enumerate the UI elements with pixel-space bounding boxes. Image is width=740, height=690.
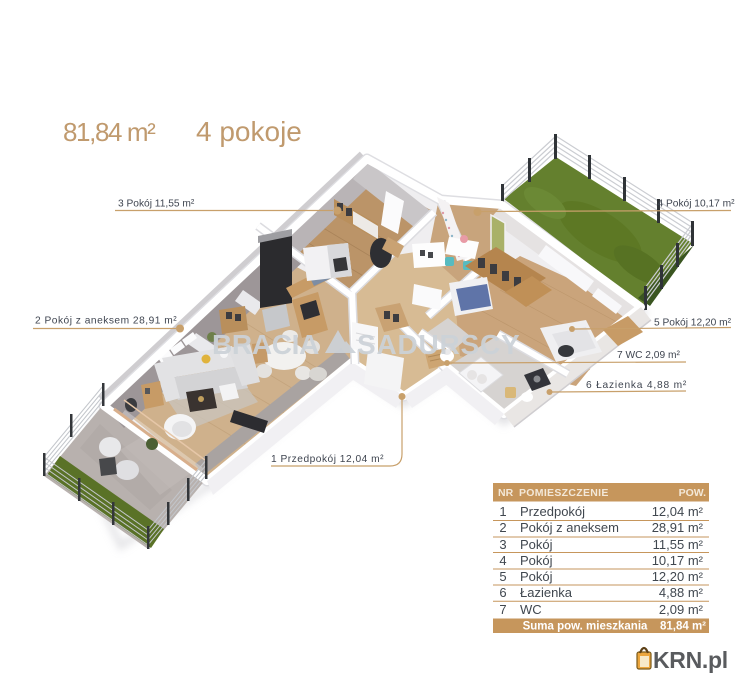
- svg-text:5 Pokój 12,20 m²: 5 Pokój 12,20 m²: [654, 318, 732, 329]
- svg-text:1: 1: [499, 504, 506, 519]
- svg-text:11,55 m²: 11,55 m²: [653, 537, 704, 552]
- svg-text:10,17 m²: 10,17 m²: [652, 553, 704, 568]
- svg-text:BRACIA: BRACIA: [212, 329, 319, 360]
- svg-text:NR: NR: [498, 487, 514, 499]
- svg-text:WC: WC: [520, 602, 542, 617]
- svg-text:7 WC 2,09 m²: 7 WC 2,09 m²: [617, 350, 680, 361]
- svg-text:28,91 m²: 28,91 m²: [652, 520, 704, 535]
- svg-text:Przedpokój: Przedpokój: [520, 504, 585, 519]
- svg-text:4,88 m²: 4,88 m²: [659, 585, 704, 600]
- svg-text:Pokój z aneksem: Pokój z aneksem: [520, 520, 619, 535]
- svg-text:2: 2: [499, 520, 506, 535]
- svg-text:81,84 m²: 81,84 m²: [660, 621, 706, 633]
- svg-text:Suma pow. mieszkania: Suma pow. mieszkania: [523, 621, 648, 633]
- svg-text:6 Łazienka 4,88 m²: 6 Łazienka 4,88 m²: [586, 380, 687, 391]
- svg-text:2,09 m²: 2,09 m²: [659, 602, 704, 617]
- svg-text:Pokój: Pokój: [520, 569, 553, 584]
- svg-text:Pokój: Pokój: [520, 537, 553, 552]
- svg-text:12,20 m²: 12,20 m²: [652, 569, 704, 584]
- svg-text:SADURSCY: SADURSCY: [357, 329, 521, 360]
- svg-text:12,04 m²: 12,04 m²: [652, 504, 704, 519]
- svg-text:POW.: POW.: [679, 487, 707, 499]
- svg-text:Pokój: Pokój: [520, 553, 553, 568]
- svg-text:5: 5: [499, 569, 506, 584]
- svg-text:1 Przedpokój 12,04 m²: 1 Przedpokój 12,04 m²: [271, 454, 384, 465]
- svg-text:7: 7: [499, 602, 506, 617]
- svg-text:3: 3: [499, 537, 506, 552]
- svg-text:81,84 m²: 81,84 m²: [63, 117, 156, 147]
- svg-text:4 Pokój 10,17 m²: 4 Pokój 10,17 m²: [658, 199, 736, 210]
- svg-text:POMIESZCZENIE: POMIESZCZENIE: [519, 487, 609, 499]
- svg-text:2 Pokój z aneksem 28,91 m²: 2 Pokój z aneksem 28,91 m²: [35, 316, 177, 327]
- svg-text:Łazienka: Łazienka: [520, 585, 573, 600]
- svg-text:KRN.pl: KRN.pl: [653, 647, 728, 673]
- svg-text:4: 4: [499, 553, 506, 568]
- svg-text:3 Pokój 11,55 m²: 3 Pokój 11,55 m²: [118, 199, 195, 210]
- svg-text:6: 6: [499, 585, 506, 600]
- svg-text:4 pokoje: 4 pokoje: [196, 116, 302, 147]
